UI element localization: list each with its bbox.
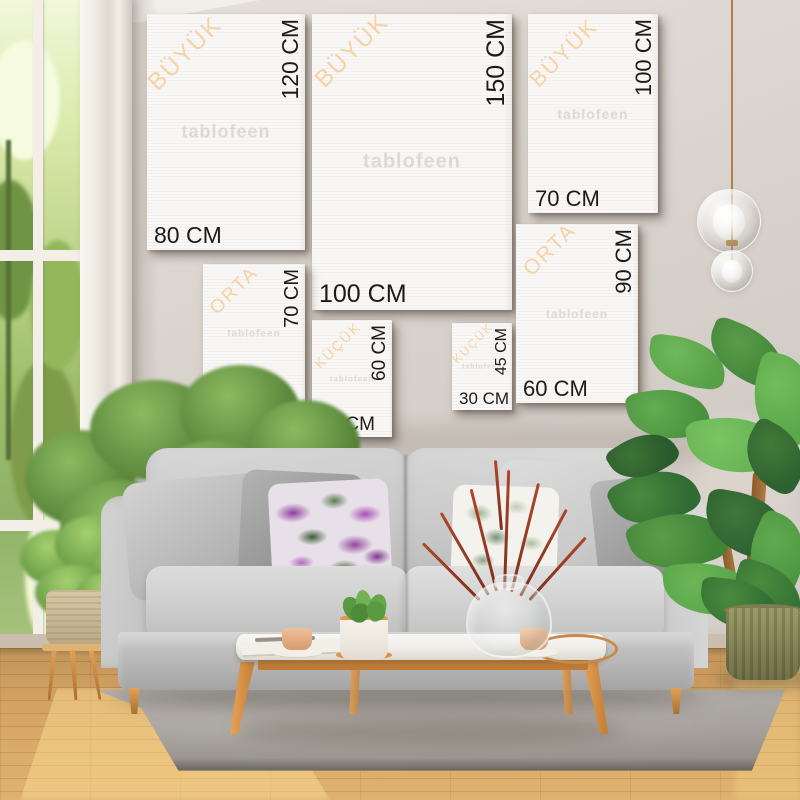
table-floor-shadow bbox=[235, 716, 625, 744]
height-label: 90 CM bbox=[611, 229, 637, 294]
height-label: 45 CM bbox=[493, 328, 511, 375]
woven-pot bbox=[46, 590, 108, 648]
canvas-100x150: BÜYÜK tablofeen 100 CM 150 CM bbox=[312, 14, 512, 310]
succulent-pot bbox=[340, 616, 388, 660]
pendant-frost bbox=[713, 204, 745, 240]
height-label: 120 CM bbox=[277, 19, 304, 100]
planter-pot bbox=[726, 608, 800, 680]
pendant-bubble-large bbox=[697, 189, 761, 253]
brand-watermark: tablofeen bbox=[557, 106, 628, 122]
coffee-cup bbox=[282, 628, 312, 650]
size-category-label: ORTA bbox=[519, 219, 582, 282]
window-mullion-horizontal bbox=[0, 250, 80, 261]
brand-watermark: tablofeen bbox=[330, 374, 375, 383]
width-label: 30 CM bbox=[459, 389, 509, 409]
height-label: 100 CM bbox=[631, 19, 657, 96]
size-category-label: KÜÇÜK bbox=[450, 320, 497, 367]
height-label: 70 CM bbox=[281, 269, 304, 328]
height-label: 150 CM bbox=[482, 19, 511, 107]
sofa-back-seam bbox=[404, 455, 407, 585]
size-category-label: ORTA bbox=[206, 262, 263, 319]
canvas-70x100: BÜYÜK tablofeen 70 CM 100 CM bbox=[528, 14, 658, 213]
size-category-label: BÜYÜK bbox=[524, 13, 603, 92]
sofa-seat-seam bbox=[405, 572, 408, 636]
size-category-label: BÜYÜK bbox=[143, 11, 228, 96]
width-label: 60 CM bbox=[523, 376, 588, 402]
brand-watermark: tablofeen bbox=[227, 328, 280, 339]
canvas-30x45: KÜÇÜK tablofeen 30 CM 45 CM bbox=[452, 323, 512, 410]
brand-watermark: tablofeen bbox=[546, 307, 608, 321]
width-label: 70 CM bbox=[535, 186, 600, 212]
pendant-bubble-small bbox=[711, 250, 753, 292]
living-room-size-guide-scene: BÜYÜK tablofeen 80 CM 120 CM BÜYÜK tablo… bbox=[0, 0, 800, 800]
pendant-frost bbox=[722, 260, 743, 283]
size-category-label: BÜYÜK bbox=[310, 8, 395, 93]
canvas-80x120: BÜYÜK tablofeen 80 CM 120 CM bbox=[147, 14, 305, 250]
brand-watermark: tablofeen bbox=[363, 151, 461, 174]
glass-vase bbox=[466, 582, 552, 658]
brand-watermark: tablofeen bbox=[181, 122, 270, 143]
width-label: 80 CM bbox=[154, 222, 222, 249]
height-label: 60 CM bbox=[369, 325, 391, 381]
width-label: 100 CM bbox=[319, 280, 407, 309]
canvas-60x90: ORTA tablofeen 60 CM 90 CM bbox=[516, 224, 638, 403]
size-category-label: KÜÇÜK bbox=[311, 318, 364, 371]
